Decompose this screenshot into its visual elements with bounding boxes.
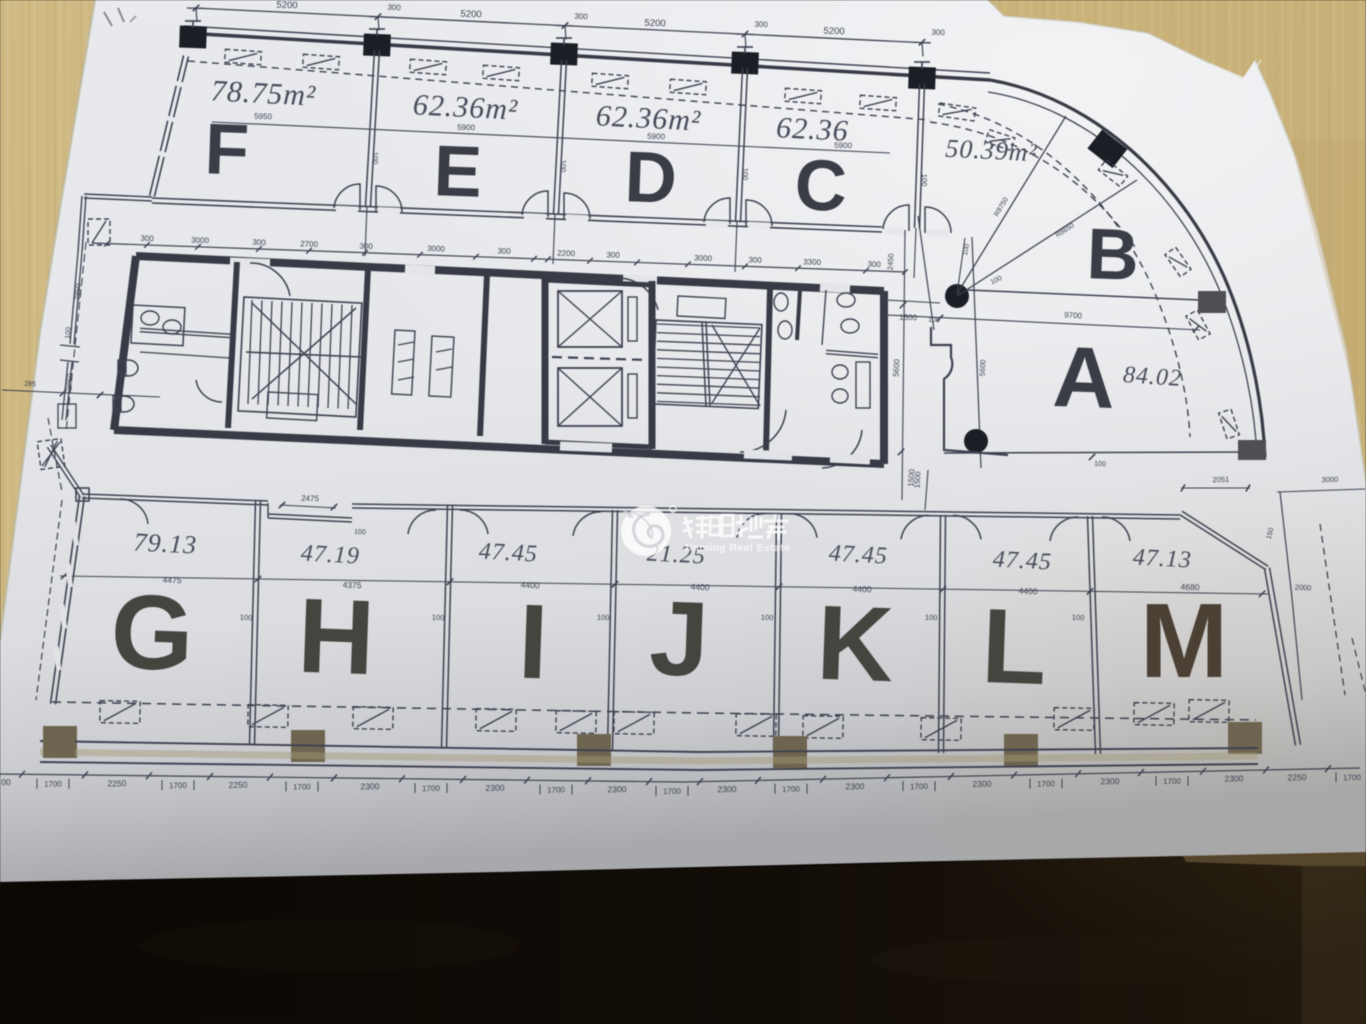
svg-text:1500: 1500 [899,313,918,323]
svg-text:2300: 2300 [485,783,504,793]
svg-text:K: K [815,584,896,705]
svg-text:100: 100 [354,529,366,536]
svg-text:5200: 5200 [276,0,298,11]
svg-text:2300: 2300 [607,784,626,794]
svg-text:100: 100 [920,174,929,187]
svg-text:300: 300 [754,20,768,29]
svg-text:2250: 2250 [1287,772,1306,782]
svg-text:300: 300 [387,3,401,12]
svg-text:C: C [793,145,848,227]
svg-text:300: 300 [252,238,266,247]
svg-text:1700: 1700 [782,785,801,794]
svg-text:100: 100 [559,160,568,173]
svg-text:9700: 9700 [1064,311,1083,321]
svg-text:5600: 5600 [978,359,988,376]
svg-text:300: 300 [867,260,881,269]
svg-text:5200: 5200 [460,9,482,21]
svg-text:62.36m²: 62.36m² [595,99,702,137]
svg-text:B: B [1085,214,1140,296]
svg-text:A: A [1051,329,1116,427]
svg-text:1700: 1700 [1037,779,1056,788]
svg-text:2850: 2850 [72,283,82,300]
svg-text:1700: 1700 [169,781,188,790]
svg-text:62.36m²: 62.36m² [412,88,519,126]
svg-text:E: E [432,131,483,213]
svg-text:3000: 3000 [694,253,713,263]
svg-text:300: 300 [931,28,945,37]
svg-text:100: 100 [761,613,774,622]
svg-text:47.45: 47.45 [828,540,888,569]
svg-text:1700: 1700 [293,782,312,791]
svg-text:300: 300 [606,250,620,259]
svg-text:3300: 3300 [803,257,822,267]
svg-text:5950: 5950 [254,112,273,122]
svg-text:3000: 3000 [191,236,210,246]
svg-text:2300: 2300 [845,781,864,791]
svg-text:285: 285 [24,381,36,388]
svg-text:300: 300 [748,255,762,264]
svg-text:100: 100 [1072,613,1085,622]
svg-text:100: 100 [371,152,380,165]
svg-text:1700: 1700 [547,785,566,794]
svg-text:2300: 2300 [717,784,736,794]
svg-text:2700: 2700 [300,239,319,249]
svg-text:1700: 1700 [1163,777,1182,786]
svg-text:47.45: 47.45 [992,546,1052,575]
svg-text:Jinming Real Estate: Jinming Real Estate [683,542,790,554]
svg-text:100: 100 [741,168,750,181]
svg-text:2250: 2250 [228,780,247,790]
svg-text:5200: 5200 [644,18,666,30]
svg-text:100: 100 [1094,461,1106,468]
svg-text:D: D [623,137,678,219]
svg-text:1700: 1700 [663,787,682,796]
svg-text:3000: 3000 [427,244,446,254]
svg-text:300: 300 [359,242,373,251]
svg-text:100: 100 [240,613,253,622]
svg-text:M: M [1140,582,1228,700]
svg-text:5600: 5600 [892,358,902,377]
svg-text:L: L [980,587,1049,707]
svg-text:2850: 2850 [64,373,74,390]
svg-text:I: I [516,583,550,702]
svg-text:2300: 2300 [1100,776,1119,786]
svg-text:1500: 1500 [913,471,923,488]
svg-text:300: 300 [140,234,154,243]
svg-text:2300: 2300 [1224,773,1243,783]
svg-text:100: 100 [925,613,938,622]
svg-text:G: G [109,573,196,694]
svg-text:1700: 1700 [910,782,929,791]
svg-text:H: H [296,577,377,698]
svg-text:J: J [648,579,711,699]
svg-text:2300: 2300 [360,781,379,791]
svg-text:2475: 2475 [301,494,320,504]
svg-text:1700: 1700 [44,779,63,788]
svg-text:2000: 2000 [1295,583,1312,593]
svg-text:2051: 2051 [1212,475,1229,485]
svg-text:47.19: 47.19 [300,540,360,569]
svg-text:100: 100 [65,327,73,339]
svg-text:00: 00 [1,777,11,787]
svg-text:1700: 1700 [422,784,441,793]
svg-text:50.39m²: 50.39m² [945,134,1039,168]
svg-text:3000: 3000 [1321,475,1338,485]
svg-text:F: F [203,109,250,190]
svg-text:2250: 2250 [107,778,126,788]
svg-text:2300: 2300 [972,779,991,789]
svg-text:100: 100 [597,613,610,622]
svg-text:47.45: 47.45 [478,538,538,567]
svg-text:5200: 5200 [823,26,845,38]
svg-text:100: 100 [432,613,445,622]
svg-text:2200: 2200 [557,249,576,259]
svg-text:78.75m²: 78.75m² [210,74,317,112]
svg-text:300: 300 [497,246,511,255]
svg-text:84.02: 84.02 [1122,362,1183,392]
svg-text:47.13: 47.13 [1132,544,1192,573]
svg-text:62.36: 62.36 [775,111,849,148]
svg-text:2450: 2450 [886,253,896,270]
svg-text:300: 300 [574,12,588,21]
svg-text:79.13: 79.13 [133,527,198,559]
svg-text:1700: 1700 [1343,773,1362,782]
